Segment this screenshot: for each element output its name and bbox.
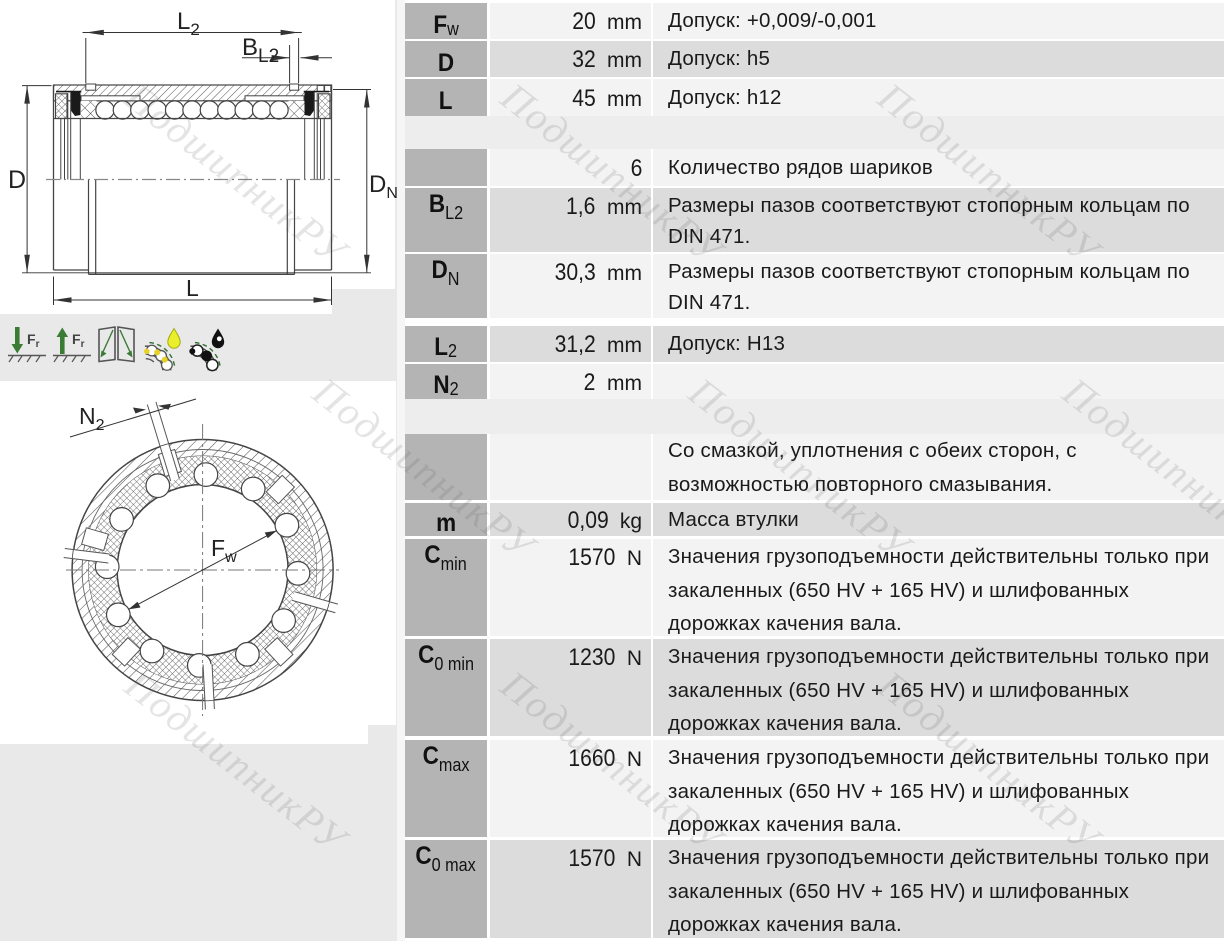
svg-text:L2: L2 bbox=[177, 8, 200, 39]
svg-text:Fw: Fw bbox=[211, 535, 237, 566]
svg-text:D: D bbox=[8, 166, 26, 194]
svg-text:BL2: BL2 bbox=[242, 34, 279, 67]
svg-text:N2: N2 bbox=[79, 403, 105, 434]
svg-text:Fr: Fr bbox=[72, 331, 85, 350]
svg-text:L: L bbox=[186, 275, 199, 301]
svg-text:DN: DN bbox=[369, 171, 397, 202]
svg-text:Fr: Fr bbox=[27, 331, 40, 350]
